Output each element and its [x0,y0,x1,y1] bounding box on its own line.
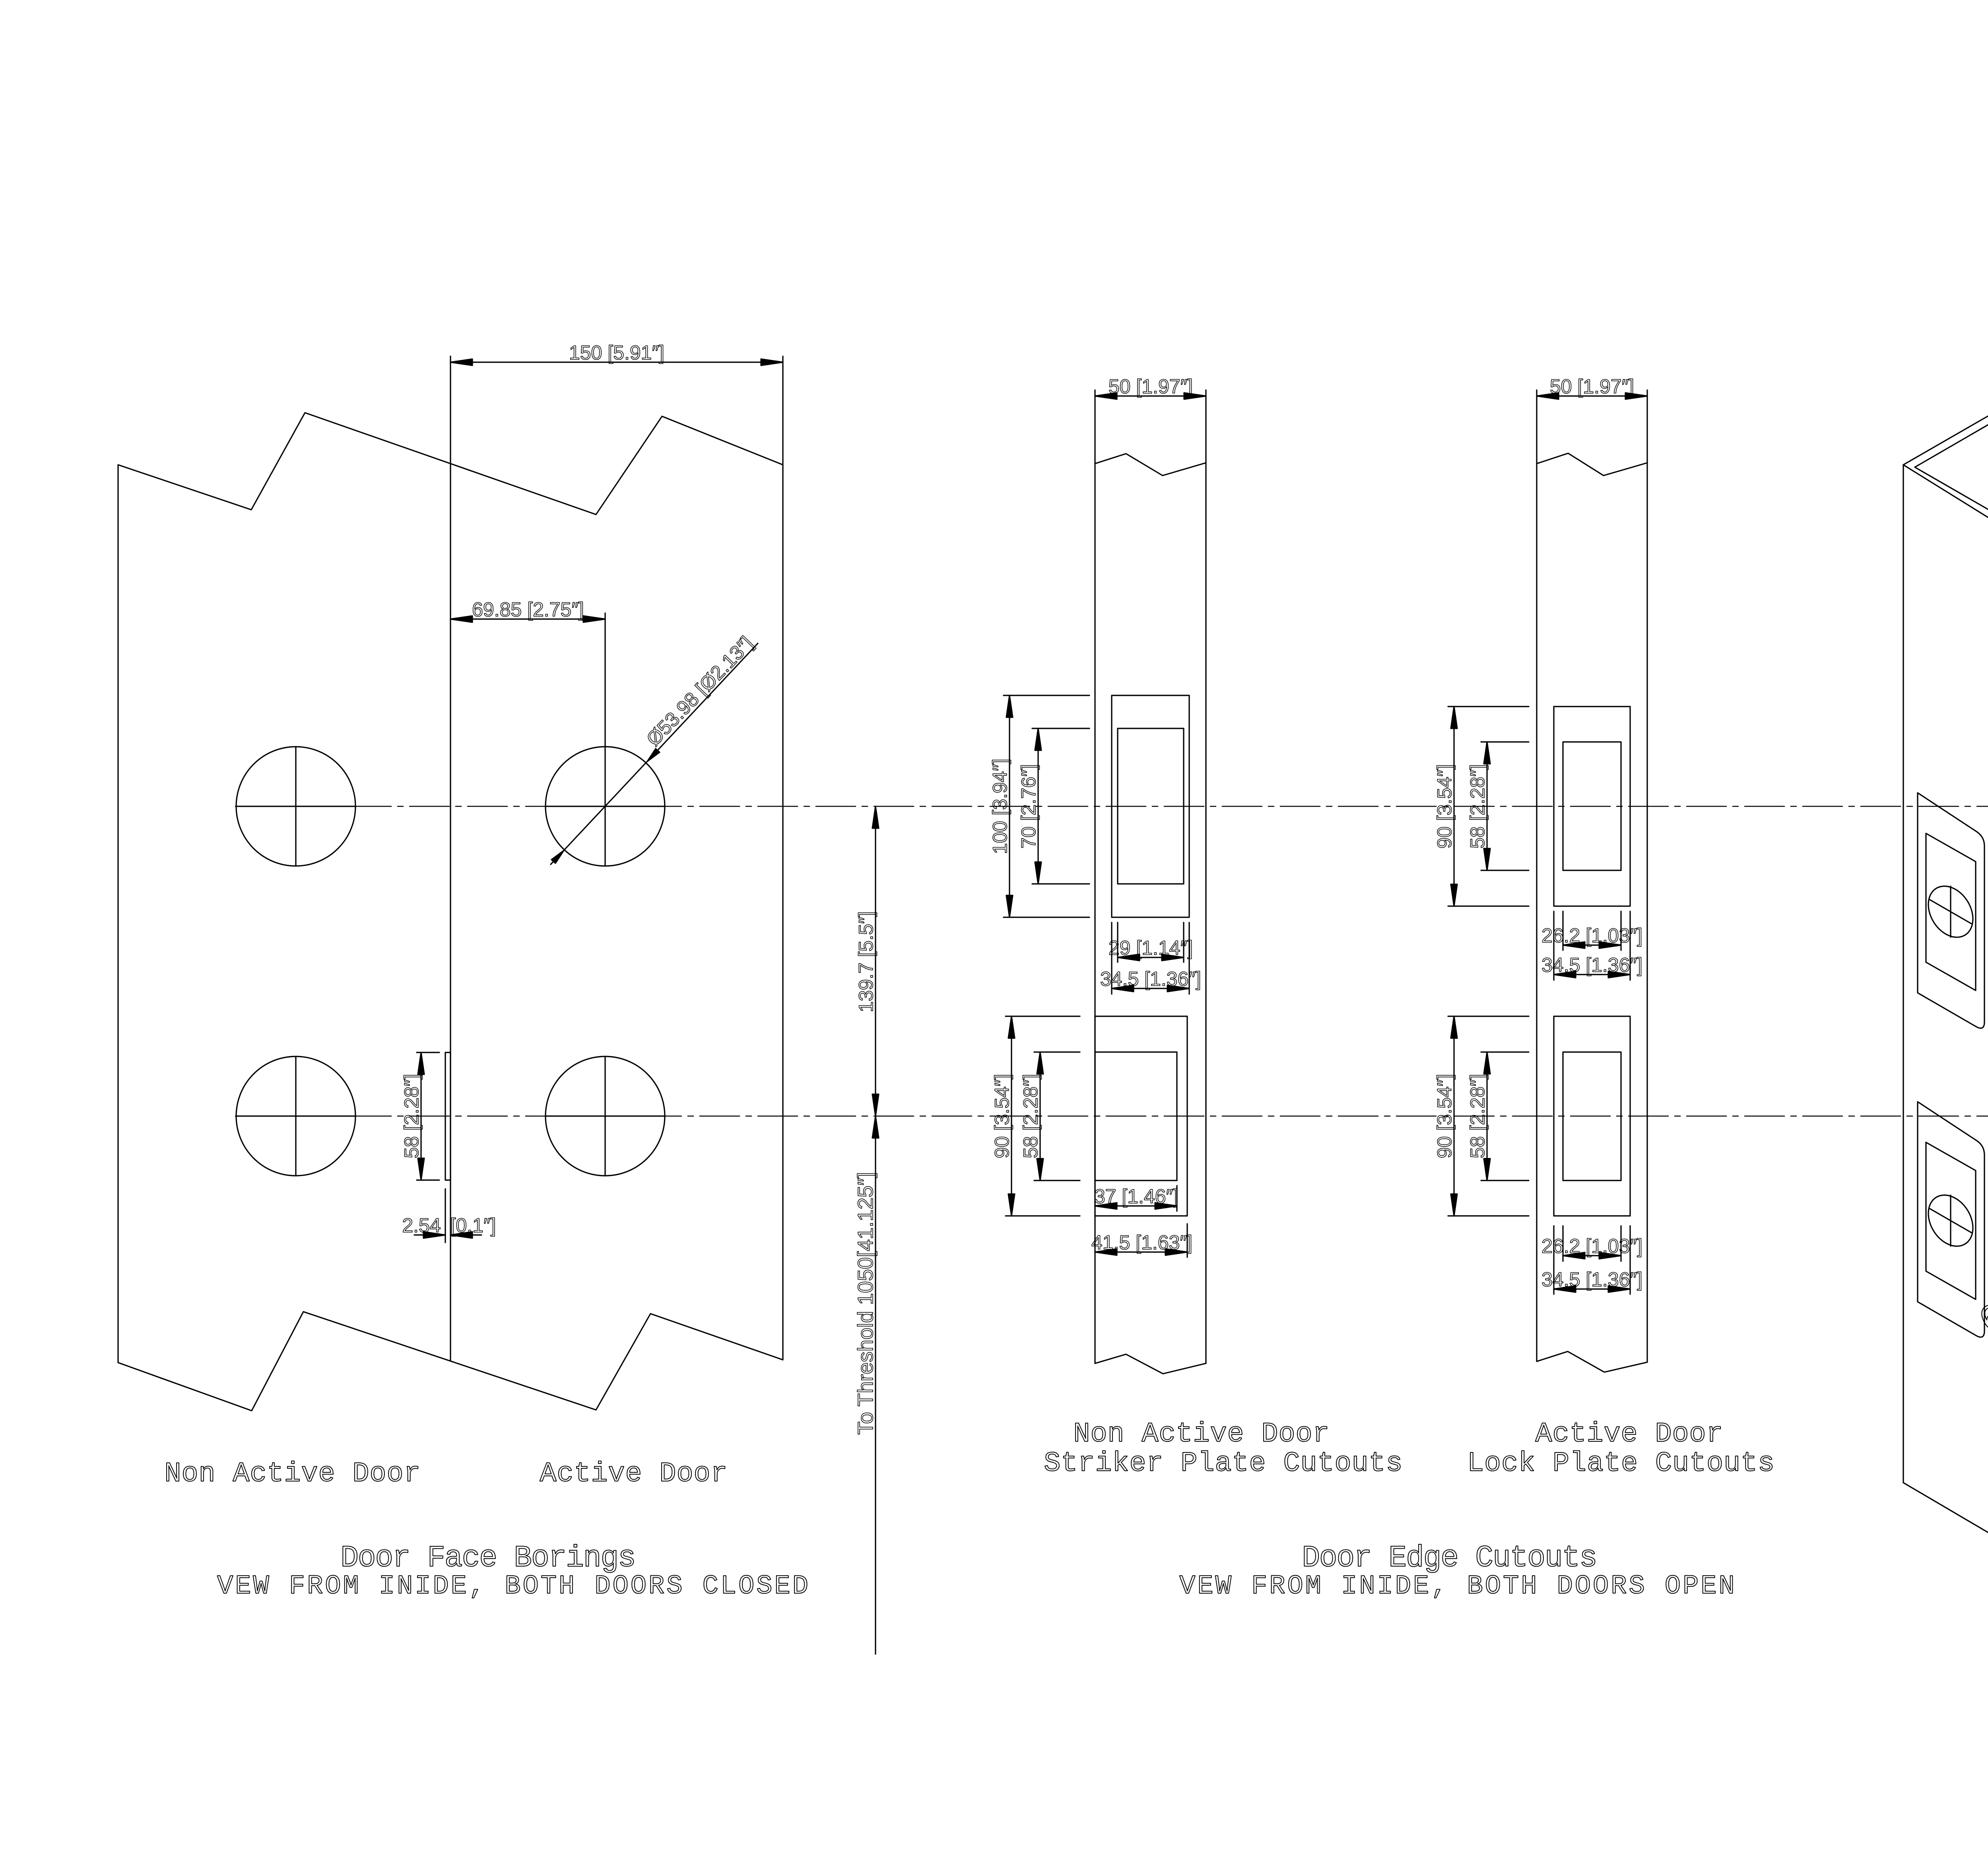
svg-text:34.5 [1.36″]: 34.5 [1.36″] [1100,968,1201,990]
svg-text:69.85 [2.75″]: 69.85 [2.75″] [472,598,584,621]
svg-text:58 [2.28″]: 58 [2.28″] [400,1074,423,1158]
svg-text:Active Door: Active Door [540,1458,728,1490]
svg-text:90 [3.54″]: 90 [3.54″] [991,1074,1013,1158]
svg-text:50 [1.97″]: 50 [1.97″] [1550,375,1634,398]
svg-text:Door Edge Cutouts: Door Edge Cutouts [1302,1541,1596,1575]
svg-text:26.2 [1.03″]: 26.2 [1.03″] [1541,924,1642,947]
svg-text:VEW FROM INIDE, BOTH DOORS OPE: VEW FROM INIDE, BOTH DOORS OPEN [1179,1571,1736,1602]
svg-text:VEW FROM INIDE, BOTH DOORS CLO: VEW FROM INIDE, BOTH DOORS CLOSED [217,1571,810,1602]
svg-text:Non Active Door: Non Active Door [1073,1419,1330,1450]
svg-text:26.2 [1.03″]: 26.2 [1.03″] [1541,1235,1642,1257]
svg-text:41.5 [1.63″]: 41.5 [1.63″] [1091,1231,1192,1254]
svg-text:58 [2.28″]: 58 [2.28″] [1019,1074,1042,1158]
svg-text:50 [1.97″]: 50 [1.97″] [1109,375,1193,398]
svg-text:29 [1.14″]: 29 [1.14″] [1109,937,1193,959]
svg-text:Lock Plate Cutouts: Lock Plate Cutouts [1467,1448,1775,1479]
svg-text:37 [1.46″]: 37 [1.46″] [1094,1185,1178,1208]
svg-text:[0.1″]: [0.1″] [450,1214,496,1237]
svg-text:Door Face Borings: Door Face Borings [340,1541,635,1575]
svg-text:Non Active Door: Non Active Door [164,1458,421,1490]
svg-text:100 [3.94″]: 100 [3.94″] [989,759,1011,854]
svg-text:150 [5.91″]: 150 [5.91″] [569,342,664,364]
svg-text:58 [2.28″]: 58 [2.28″] [1466,1074,1489,1158]
svg-text:Active Door: Active Door [1535,1419,1723,1450]
svg-text:To Threshold 1050[41.125″]: To Threshold 1050[41.125″] [854,1172,878,1435]
svg-text:139.7 [5.5″]: 139.7 [5.5″] [855,911,877,1012]
svg-text:90 [3.54″]: 90 [3.54″] [1433,764,1456,848]
svg-text:34.5 [1.36″]: 34.5 [1.36″] [1541,1268,1642,1291]
svg-text:Striker Plate Cutouts: Striker Plate Cutouts [1044,1448,1403,1479]
svg-text:34.5 [1.36″]: 34.5 [1.36″] [1541,954,1642,976]
svg-text:2.54: 2.54 [402,1214,441,1237]
svg-text:90 [3.54″]: 90 [3.54″] [1433,1074,1456,1158]
svg-text:58 [2.28″]: 58 [2.28″] [1466,764,1489,848]
svg-text:70 [2.76″]: 70 [2.76″] [1017,764,1040,848]
